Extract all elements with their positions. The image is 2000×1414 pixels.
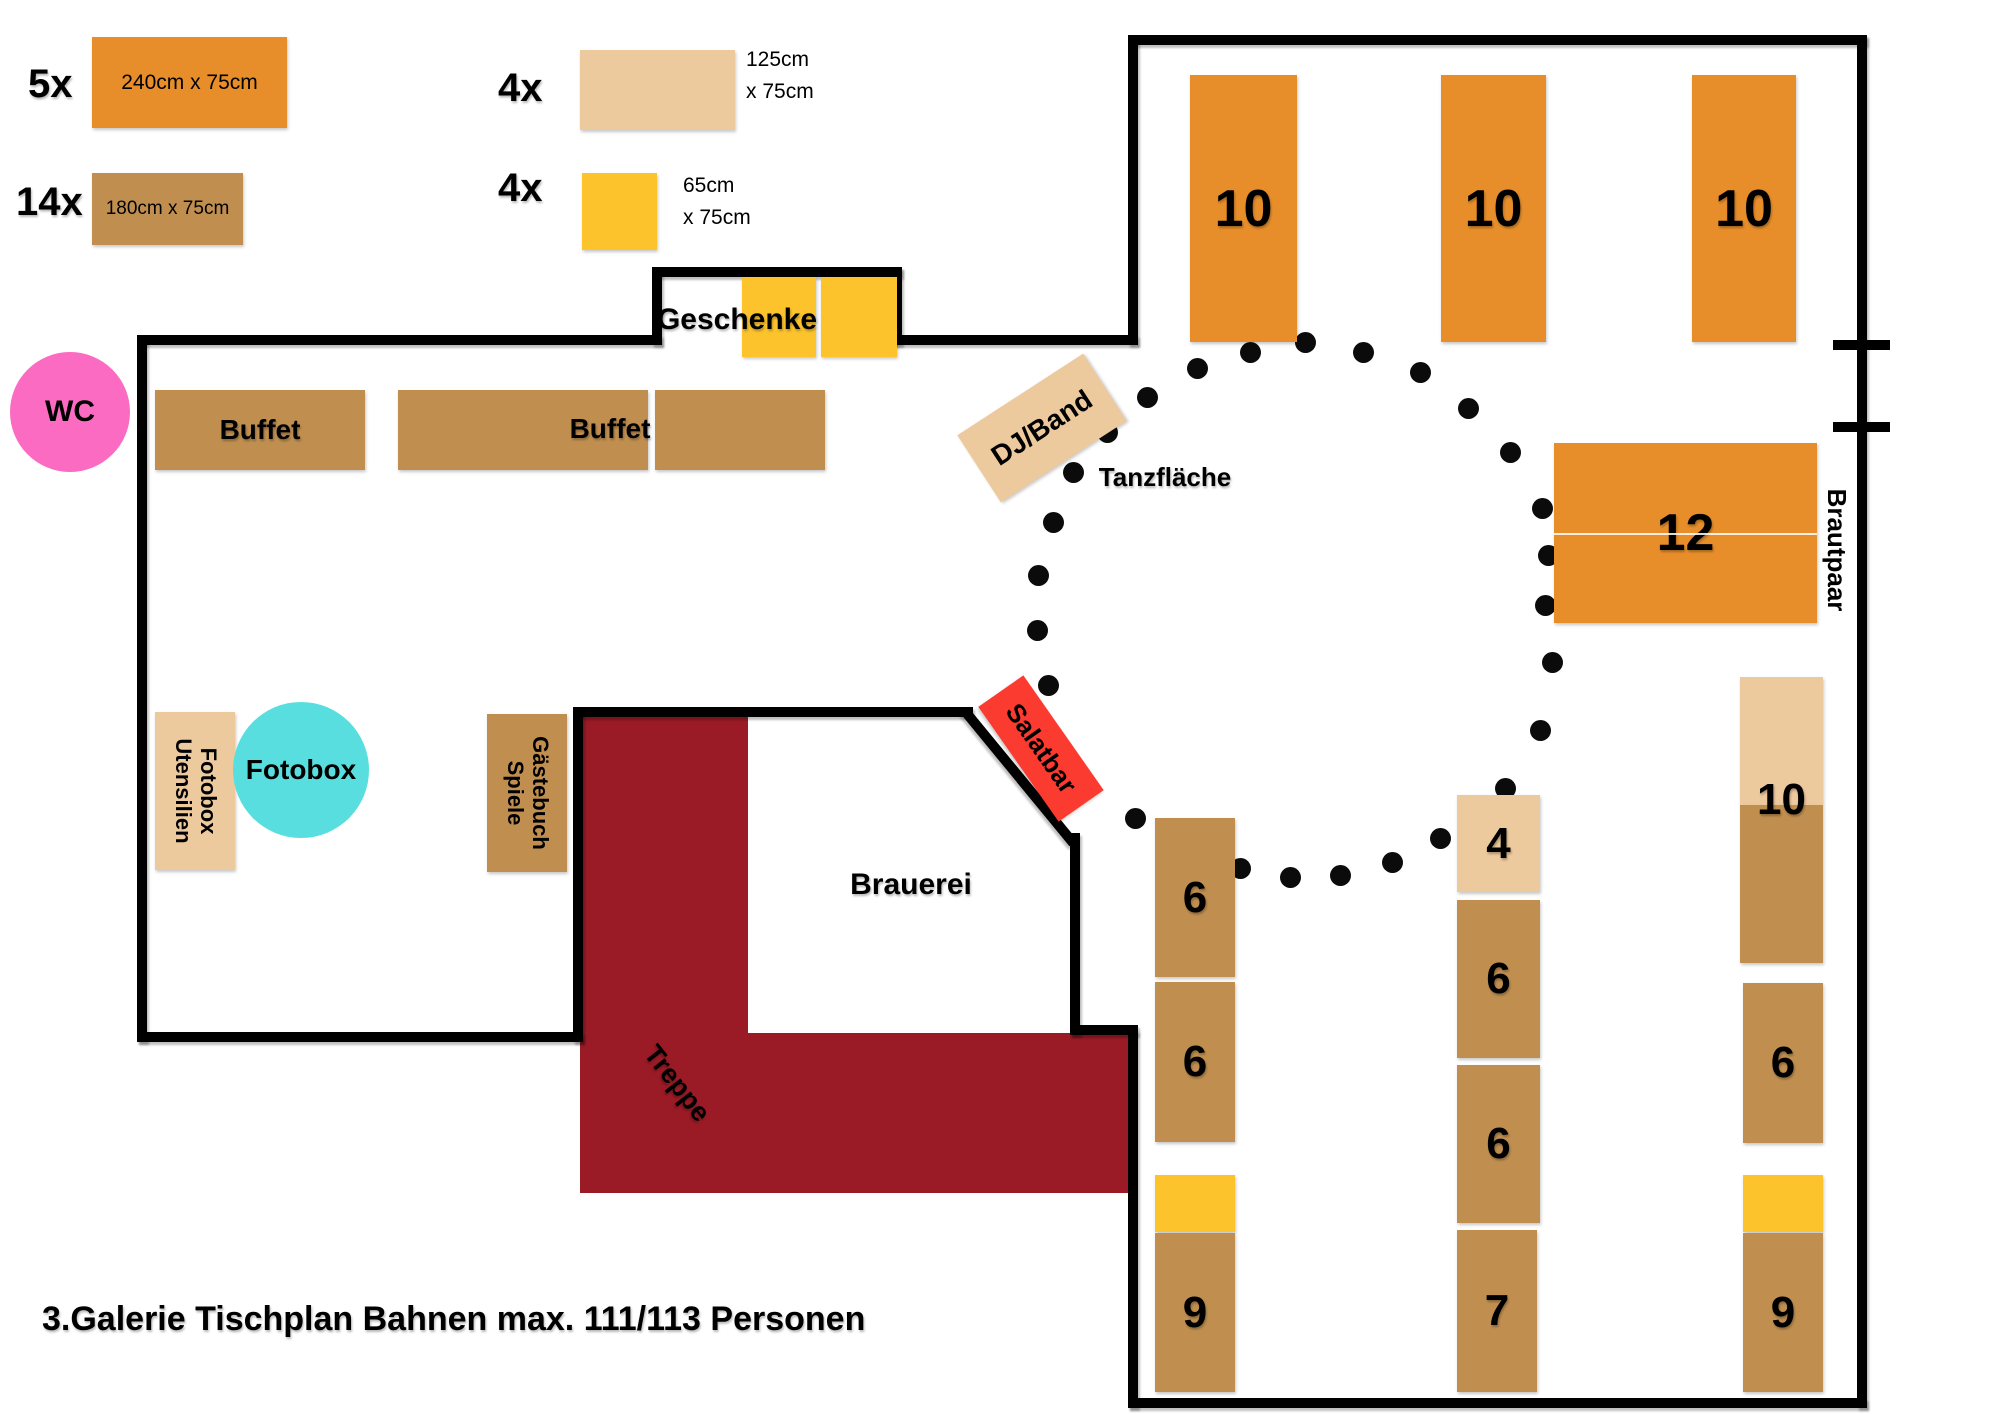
wc-label: WC: [45, 395, 95, 429]
brauerei-label: Brauerei: [831, 868, 991, 902]
wall-leftroom-left: [137, 335, 147, 1042]
dance-floor-dot: [1330, 865, 1351, 886]
buffet-right-label: Buffet: [510, 413, 710, 445]
table-9: 9: [1155, 1233, 1235, 1392]
fotobox-label: Fotobox: [246, 754, 356, 786]
wall-right: [1857, 35, 1867, 1408]
table: [1743, 1175, 1823, 1232]
legend-swatch-125cm: [580, 50, 735, 130]
legend-swatch-180cm-label: 180cm x 75cm: [106, 198, 230, 220]
dance-floor-dot: [1535, 595, 1556, 616]
table-6: 6: [1743, 983, 1823, 1143]
fotobox-circle: Fotobox: [233, 702, 369, 838]
dance-floor-dot: [1353, 342, 1374, 363]
table-7: 7: [1457, 1230, 1537, 1392]
table-6: 6: [1457, 900, 1540, 1058]
table-label: 9: [1183, 1288, 1207, 1338]
dance-floor-dot: [1043, 512, 1064, 533]
dance-floor-dot: [1187, 358, 1208, 379]
table-label: 10: [1465, 179, 1523, 239]
legend-label-65cm-line1: 65cm: [683, 170, 751, 202]
table-label: 10: [1215, 179, 1273, 239]
table-10: 10: [1441, 75, 1546, 342]
dance-floor-dot: [1382, 852, 1403, 873]
legend-swatch-240cm-label: 240cm x 75cm: [121, 71, 258, 95]
gaestebuch-line2: Spiele: [502, 761, 527, 826]
dance-floor-dot: [1137, 387, 1158, 408]
salatbar-label: Salatbar: [999, 698, 1083, 800]
wall-jog-horizontal: [1070, 1025, 1138, 1035]
table-label: 6: [1486, 954, 1510, 1004]
dance-floor-dot: [1458, 398, 1479, 419]
legend-swatch-240cm: 240cm x 75cm: [92, 37, 287, 128]
fotobox-utensilien-line1: Fotobox: [195, 748, 220, 835]
wall-bigroom-left-lower: [1128, 1030, 1138, 1408]
dance-floor-dot: [1027, 620, 1048, 641]
legend-label-125cm: 125cm x 75cm: [746, 44, 814, 108]
gaestebuch-textbox: Gästebuch Spiele: [487, 714, 567, 872]
dance-floor-dot: [1295, 332, 1316, 353]
wall-bottom: [1128, 1398, 1867, 1408]
dance-floor-dot: [1410, 362, 1431, 383]
table: [1155, 1175, 1235, 1232]
table-label: 6: [1183, 1037, 1207, 1087]
dance-floor-dot: [1430, 828, 1451, 849]
table-divider-line: [1554, 533, 1817, 535]
table: [1740, 805, 1823, 963]
fotobox-utensilien-textbox: Fotobox Utensilien: [155, 712, 235, 870]
dance-floor-dot: [1240, 342, 1261, 363]
dance-floor-dot: [1542, 652, 1563, 673]
wall-corridor-top: [892, 335, 1138, 345]
table-6: 6: [1457, 1065, 1540, 1223]
wall-bigroom-top: [1128, 35, 1867, 45]
brautpaar-label: Brautpaar: [1821, 489, 1850, 612]
tanzflaeche-label: Tanzfläche: [1045, 462, 1285, 493]
legend-label-125cm-line1: 125cm: [746, 44, 814, 76]
table-4: 4: [1457, 795, 1540, 892]
brautpaar-textbox: Brautpaar: [1816, 455, 1856, 645]
legend-count-1: 5x: [28, 62, 73, 107]
legend-count-2: 14x: [16, 180, 83, 225]
table-6: 6: [1155, 818, 1235, 977]
dance-floor-dot: [1280, 867, 1301, 888]
dance-floor-dot: [1028, 565, 1049, 586]
gaestebuch-line1: Gästebuch: [527, 736, 552, 850]
table-label: 10: [1715, 179, 1773, 239]
wall-leftroom-bottom: [137, 1032, 583, 1042]
table-buffet: Buffet: [155, 390, 365, 470]
door-tick-upper: [1833, 340, 1890, 350]
table-9: 9: [1743, 1233, 1823, 1392]
table-label: 7: [1485, 1286, 1509, 1336]
legend-swatch-65cm: [582, 173, 657, 250]
legend-count-4: 4x: [498, 166, 543, 211]
dance-floor-dot: [1038, 675, 1059, 696]
dance-floor-dot: [1532, 498, 1553, 519]
table-label: Buffet: [220, 414, 301, 446]
table-label: 6: [1771, 1038, 1795, 1088]
table-label: 6: [1486, 1119, 1510, 1169]
table-12: 12: [1554, 443, 1817, 623]
dance-floor-dot: [1500, 442, 1521, 463]
legend-label-65cm: 65cm x 75cm: [683, 170, 751, 234]
page-title: 3.Galerie Tischplan Bahnen max. 111/113 …: [42, 1300, 865, 1339]
treppe-area-horizontal: [744, 1033, 1128, 1193]
door-tick-lower: [1833, 422, 1890, 432]
table-10: 10: [1190, 75, 1297, 342]
wall-bump-top: [652, 267, 902, 277]
table-label: 6: [1183, 873, 1207, 923]
table-6: 6: [1155, 982, 1235, 1142]
fotobox-utensilien-line2: Utensilien: [170, 738, 195, 843]
legend-label-65cm-line2: x 75cm: [683, 202, 751, 234]
dj-band-label: DJ/Band: [986, 384, 1099, 473]
table-label: 9: [1771, 1288, 1795, 1338]
dance-floor-dot: [1530, 720, 1551, 741]
table-label: 4: [1486, 819, 1510, 869]
geschenke-label: Geschenke: [577, 303, 897, 337]
right-tower-number-label: 10: [1740, 772, 1823, 828]
legend-label-125cm-line2: x 75cm: [746, 76, 814, 108]
table-10: 10: [1692, 75, 1796, 342]
wall-jog-vertical: [1070, 833, 1080, 1035]
wc-circle: WC: [10, 352, 130, 472]
wall-bigroom-left-upper: [1128, 35, 1138, 345]
legend-count-3: 4x: [498, 66, 543, 111]
wall-red-left: [573, 707, 583, 1042]
dance-floor-dot: [1125, 808, 1146, 829]
floor-plan: Treppe Tanzfläche 10101012Buffet66946676…: [0, 0, 2000, 1414]
legend-swatch-180cm: 180cm x 75cm: [92, 173, 243, 245]
wall-brauerei-top: [573, 707, 973, 717]
